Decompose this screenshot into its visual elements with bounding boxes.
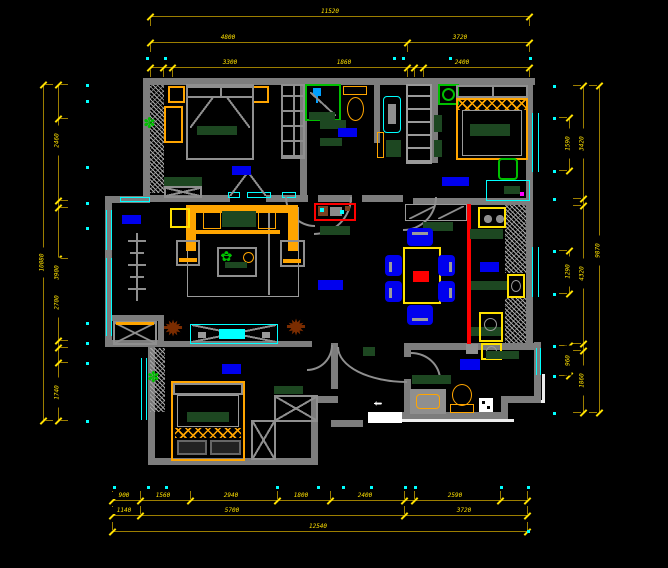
entry-arrow-icon: ⇦ bbox=[374, 397, 382, 410]
decor-dot bbox=[340, 210, 344, 214]
dimension-dot bbox=[86, 166, 89, 169]
plant-icon: ✽ bbox=[144, 114, 155, 132]
dimension-label: 1860 bbox=[579, 366, 586, 396]
extension-line bbox=[60, 347, 68, 348]
dimension-dot bbox=[449, 57, 452, 60]
shelving-unit bbox=[406, 84, 432, 164]
bath2-counter bbox=[486, 351, 519, 359]
room-label-balcony bbox=[122, 215, 141, 224]
extension-line bbox=[330, 491, 331, 499]
drain-dot bbox=[487, 406, 490, 409]
dimension-label: 1560 bbox=[148, 492, 178, 499]
extension-line bbox=[573, 205, 581, 206]
dimension-dot bbox=[276, 486, 279, 489]
dimension-dot bbox=[553, 170, 556, 173]
dimension-line bbox=[112, 531, 527, 532]
dimension-dot bbox=[370, 486, 373, 489]
dimension-dot bbox=[147, 486, 150, 489]
exhaust-fan-blade bbox=[442, 88, 455, 101]
sideboard-line bbox=[409, 206, 435, 219]
dimension-dot bbox=[164, 57, 167, 60]
dimension-label: 3720 bbox=[449, 507, 479, 514]
desk-chair-2 bbox=[498, 158, 518, 180]
wall-hall-4 bbox=[362, 195, 403, 202]
extension-line bbox=[414, 69, 415, 77]
dimension-label: 1740 bbox=[54, 378, 61, 408]
extension-line bbox=[112, 522, 113, 530]
door-hinge bbox=[404, 347, 409, 352]
dimension-tick bbox=[40, 417, 48, 425]
kitchen-divider bbox=[467, 204, 471, 344]
armchair-left-cushion bbox=[179, 258, 197, 262]
dimension-dot bbox=[527, 530, 530, 533]
extension-line bbox=[45, 420, 53, 421]
dining-chair bbox=[407, 228, 433, 246]
dimension-label: 2940 bbox=[216, 492, 246, 499]
wardrobe-3b bbox=[251, 420, 276, 460]
dimension-label: 1290 bbox=[565, 257, 572, 287]
extension-line bbox=[559, 250, 567, 251]
washbasin-1-pedestal bbox=[388, 104, 396, 124]
extension-line bbox=[60, 200, 68, 201]
dining-chair bbox=[385, 281, 402, 302]
plant-icon: ✹ bbox=[158, 313, 188, 343]
extension-line bbox=[527, 506, 528, 514]
door-hinge bbox=[332, 344, 337, 349]
dimension-dot bbox=[414, 486, 417, 489]
decor-dot bbox=[345, 206, 350, 211]
extension-line bbox=[527, 491, 528, 499]
dimension-label: 2460 bbox=[54, 126, 61, 156]
dimension-dot bbox=[393, 57, 396, 60]
bed-1-pillow bbox=[197, 126, 237, 135]
dimension-label: 4320 bbox=[579, 259, 586, 289]
extension-line bbox=[414, 491, 415, 499]
dimension-line bbox=[150, 67, 529, 68]
bath2-shelf bbox=[412, 375, 451, 384]
extension-line bbox=[573, 198, 581, 199]
extension-line bbox=[407, 44, 408, 52]
dimension-tick bbox=[55, 417, 63, 425]
dimension-label: 3900 bbox=[54, 258, 61, 288]
door-hinge bbox=[361, 421, 366, 426]
dimension-dot bbox=[553, 375, 556, 378]
coat-rack-branch bbox=[128, 240, 146, 242]
dining-chair bbox=[385, 255, 402, 276]
plant-dish bbox=[225, 262, 247, 268]
nightstand-knob bbox=[258, 92, 262, 96]
extension-line bbox=[150, 44, 151, 52]
extension-line bbox=[589, 85, 597, 86]
dining-table-center bbox=[413, 271, 429, 282]
desk-dot bbox=[520, 192, 524, 196]
closet-box-b bbox=[434, 140, 442, 157]
desk-pad bbox=[504, 186, 520, 194]
entry-plant-box bbox=[363, 347, 375, 356]
counter bbox=[470, 229, 503, 239]
door-hinge bbox=[332, 376, 337, 381]
extension-line bbox=[163, 69, 164, 77]
dimension-dot bbox=[500, 486, 503, 489]
extension-line bbox=[423, 69, 424, 77]
room-label-bedroom-3 bbox=[222, 364, 241, 374]
plant-icon: ✽ bbox=[148, 368, 159, 386]
dimension-tick bbox=[580, 409, 588, 417]
dimension-label: 3420 bbox=[579, 129, 586, 159]
dimension-tick bbox=[596, 409, 604, 417]
sofa-cushion-center bbox=[222, 211, 256, 227]
window-bedroom2-right bbox=[532, 113, 539, 172]
room-label-kitchen bbox=[480, 262, 499, 272]
nook-table-trim bbox=[116, 322, 154, 325]
extension-line bbox=[404, 506, 405, 514]
dimension-dot bbox=[86, 420, 89, 423]
dimension-dot bbox=[86, 342, 89, 345]
wardrobe-1 bbox=[281, 84, 305, 159]
extension-line bbox=[60, 420, 68, 421]
dimension-dot bbox=[553, 345, 556, 348]
coat-rack-branch bbox=[128, 288, 146, 290]
bed-2-canopy bbox=[458, 100, 526, 110]
stove bbox=[478, 207, 506, 228]
dimension-dot bbox=[86, 100, 89, 103]
tv-knob bbox=[262, 332, 270, 338]
extension-line bbox=[527, 522, 528, 530]
extension-line bbox=[60, 362, 68, 363]
extension-line bbox=[60, 118, 68, 119]
sofa-seat-edge bbox=[196, 230, 280, 234]
door-hinge bbox=[305, 194, 310, 199]
dimension-dot bbox=[113, 486, 116, 489]
wall-outline-white-1 bbox=[398, 419, 514, 422]
bed-3-pillow bbox=[187, 412, 229, 422]
bed-2-headboard bbox=[456, 85, 528, 98]
armchair-left bbox=[176, 240, 200, 266]
decor-shelf bbox=[320, 226, 350, 235]
door-hinge bbox=[349, 194, 354, 199]
toilet-1-bowl bbox=[347, 97, 364, 121]
dimension-dot bbox=[553, 293, 556, 296]
lamp-dot bbox=[177, 215, 183, 221]
bed-3-inner bbox=[177, 395, 239, 427]
dimension-line bbox=[150, 42, 529, 43]
extension-line bbox=[60, 258, 68, 259]
dimension-dot bbox=[86, 362, 89, 365]
door-hinge bbox=[404, 379, 409, 384]
extension-line bbox=[190, 491, 191, 499]
room-label-bathroom-1 bbox=[338, 128, 357, 137]
dimension-label: 2590 bbox=[440, 492, 470, 499]
window-living-left-1 bbox=[106, 210, 112, 250]
dimension-label: 10080 bbox=[39, 248, 46, 278]
door-hinge bbox=[359, 194, 364, 199]
bath1-cabinet-top bbox=[386, 140, 401, 157]
fridge-handle bbox=[499, 316, 502, 325]
extension-line bbox=[150, 69, 151, 77]
sofa-cushion-right bbox=[258, 211, 276, 229]
dimension-label: 11520 bbox=[315, 8, 345, 15]
dimension-tick bbox=[566, 167, 574, 175]
dimension-label: 900 bbox=[109, 492, 139, 499]
dining-chair bbox=[438, 255, 455, 276]
dimension-label: 2400 bbox=[447, 59, 477, 66]
bath2-box bbox=[466, 344, 478, 354]
extension-line bbox=[559, 293, 567, 294]
coat-rack-branch bbox=[130, 252, 144, 254]
dining-chair bbox=[438, 281, 455, 302]
dimension-dot bbox=[553, 250, 556, 253]
wardrobe-3a bbox=[274, 395, 318, 422]
extension-line bbox=[500, 491, 501, 499]
dresser-knob bbox=[171, 122, 175, 126]
bed-1-blanket-line bbox=[226, 96, 250, 128]
room-label-bedroom-1 bbox=[232, 166, 251, 175]
extension-line bbox=[589, 412, 597, 413]
window-sill-1 bbox=[120, 197, 150, 202]
extension-line bbox=[150, 18, 151, 26]
sideboard-line bbox=[438, 206, 464, 219]
dimension-label: 2400 bbox=[350, 492, 380, 499]
bed-1-blanket-line bbox=[190, 96, 214, 128]
chair-accent bbox=[389, 262, 392, 272]
entry-label bbox=[368, 412, 402, 423]
extension-line bbox=[404, 491, 405, 499]
extension-line bbox=[559, 170, 567, 171]
dimension-dot bbox=[553, 117, 556, 120]
floorplan-canvas[interactable]: ✽ ✿ bbox=[0, 0, 668, 568]
dimension-label: 5700 bbox=[217, 507, 247, 514]
dimension-tick bbox=[566, 290, 574, 298]
dimension-label: 4800 bbox=[213, 34, 243, 41]
extension-line bbox=[60, 340, 68, 341]
dimension-label: 3300 bbox=[215, 59, 245, 66]
window-bedroom3-left bbox=[141, 358, 147, 420]
dimension-label: 1800 bbox=[286, 492, 316, 499]
shower-bench bbox=[309, 112, 335, 120]
window-bath2-right bbox=[536, 348, 541, 375]
chair-accent bbox=[449, 262, 452, 272]
extension-line bbox=[140, 506, 141, 514]
sink-basin bbox=[511, 280, 521, 292]
dimension-dot bbox=[553, 412, 556, 415]
decor-dot bbox=[320, 208, 324, 212]
plant-icon: ✹ bbox=[281, 312, 311, 342]
door-hinge bbox=[228, 192, 233, 197]
tv-knob bbox=[198, 332, 206, 338]
dimension-label: 960 bbox=[565, 346, 572, 376]
extension-line bbox=[407, 69, 408, 77]
bed-3-foot-deco bbox=[175, 428, 241, 438]
dimension-dot bbox=[402, 57, 405, 60]
extension-line bbox=[140, 491, 141, 499]
extension-line bbox=[573, 412, 581, 413]
dimension-dot bbox=[404, 486, 407, 489]
nightstand-knob bbox=[174, 92, 178, 96]
coat-rack-branch bbox=[128, 264, 146, 266]
hatch-kitchen-counter-bottom bbox=[505, 298, 526, 343]
extension-line bbox=[573, 350, 581, 351]
room-label-living-room bbox=[318, 280, 343, 290]
extension-line bbox=[529, 69, 530, 77]
chair-accent bbox=[412, 318, 428, 321]
extension-line bbox=[529, 44, 530, 52]
toilet-2-bowl bbox=[452, 384, 472, 406]
bed-2-pillow bbox=[470, 124, 510, 136]
bench-1-top bbox=[164, 177, 202, 186]
chair-accent bbox=[449, 288, 452, 298]
toilet-2-tank bbox=[450, 404, 474, 413]
bath1-shelf-b bbox=[320, 138, 342, 146]
chair-accent bbox=[412, 232, 428, 235]
bed-3-drawer bbox=[210, 440, 241, 455]
coat-rack bbox=[136, 233, 138, 301]
bed-3-headboard bbox=[173, 383, 243, 395]
bath1-cabinet bbox=[377, 132, 384, 158]
dimension-dot bbox=[529, 57, 532, 60]
extension-line bbox=[573, 85, 581, 86]
dining-chair bbox=[407, 305, 433, 325]
dimension-label: 3720 bbox=[445, 34, 475, 41]
wall-left-upper bbox=[143, 78, 150, 202]
dimension-line bbox=[112, 515, 527, 516]
hatch-kitchen-counter-top bbox=[505, 205, 526, 273]
dimension-dot bbox=[165, 486, 168, 489]
dimension-dot bbox=[553, 85, 556, 88]
dimension-dot bbox=[86, 84, 89, 87]
wardrobe-3-shelf bbox=[274, 386, 303, 394]
dimension-line bbox=[112, 500, 527, 501]
dimension-dot bbox=[317, 486, 320, 489]
bench-1-legs bbox=[164, 186, 202, 198]
dimension-label: 9870 bbox=[595, 236, 602, 266]
armchair-right-cushion bbox=[283, 259, 301, 263]
dimension-dot bbox=[342, 486, 345, 489]
counter bbox=[471, 281, 507, 290]
extension-line bbox=[60, 84, 68, 85]
dimension-label: 1860 bbox=[329, 59, 359, 66]
dimension-dot bbox=[527, 486, 530, 489]
hatch-bed1-left bbox=[150, 85, 164, 193]
dimension-dot bbox=[86, 322, 89, 325]
dimension-dot bbox=[86, 202, 89, 205]
sofa-cushion-left bbox=[203, 211, 221, 229]
extension-line bbox=[529, 18, 530, 26]
washbasin-2-sink bbox=[416, 394, 440, 409]
wall-entry-bottom-left bbox=[331, 420, 363, 427]
extension-line bbox=[559, 117, 567, 118]
dimension-dot bbox=[553, 198, 556, 201]
chair-accent bbox=[389, 288, 392, 298]
bed-3-drawer bbox=[177, 440, 207, 455]
dimension-dot bbox=[86, 227, 89, 230]
tv-screen bbox=[219, 329, 245, 339]
dimension-label: 1140 bbox=[109, 507, 139, 514]
dimension-dot bbox=[146, 57, 149, 60]
extension-line bbox=[172, 69, 173, 77]
window-kitchen-right bbox=[532, 247, 539, 297]
extension-line bbox=[45, 84, 53, 85]
dimension-label: 12540 bbox=[303, 523, 333, 530]
dimension-label: 1590 bbox=[565, 129, 572, 159]
extension-line bbox=[60, 207, 68, 208]
coat-rack-branch bbox=[130, 276, 144, 278]
toilet-1-tank bbox=[343, 86, 367, 95]
dimension-line bbox=[150, 16, 529, 17]
door-hinge bbox=[263, 192, 268, 197]
door-hinge bbox=[410, 194, 415, 199]
closet-box-a bbox=[434, 115, 442, 132]
extension-line bbox=[277, 491, 278, 499]
dimension-label: 2700 bbox=[54, 288, 61, 318]
door-hinge bbox=[315, 194, 320, 199]
extension-line bbox=[573, 343, 581, 344]
room-label-bathroom-2 bbox=[460, 359, 480, 370]
wall-outline-white-3 bbox=[542, 374, 545, 402]
desk-item bbox=[492, 185, 504, 189]
window-living-left-2 bbox=[106, 258, 112, 336]
room-label-bedroom-2 bbox=[442, 177, 469, 186]
drain-dot bbox=[482, 401, 485, 404]
door-arc-corridor bbox=[307, 345, 333, 371]
door-hinge bbox=[400, 194, 405, 199]
fridge-circle bbox=[484, 318, 497, 331]
